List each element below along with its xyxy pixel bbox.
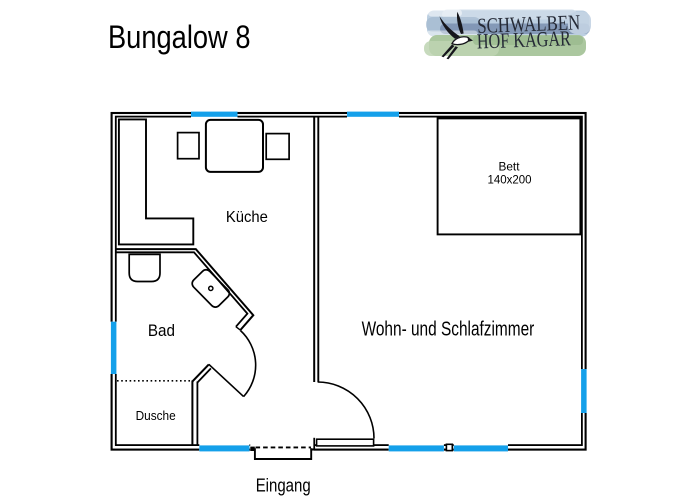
- svg-text:Küche: Küche: [226, 209, 268, 226]
- svg-text:Eingang: Eingang: [256, 475, 311, 495]
- svg-text:HOF KAGAR: HOF KAGAR: [476, 26, 571, 53]
- svg-text:Bad: Bad: [148, 321, 175, 340]
- svg-text:Wohn- und Schlafzimmer: Wohn- und Schlafzimmer: [362, 318, 535, 341]
- svg-text:140x200: 140x200: [488, 173, 532, 187]
- svg-text:Bett: Bett: [499, 159, 521, 173]
- svg-text:Dusche: Dusche: [136, 408, 176, 423]
